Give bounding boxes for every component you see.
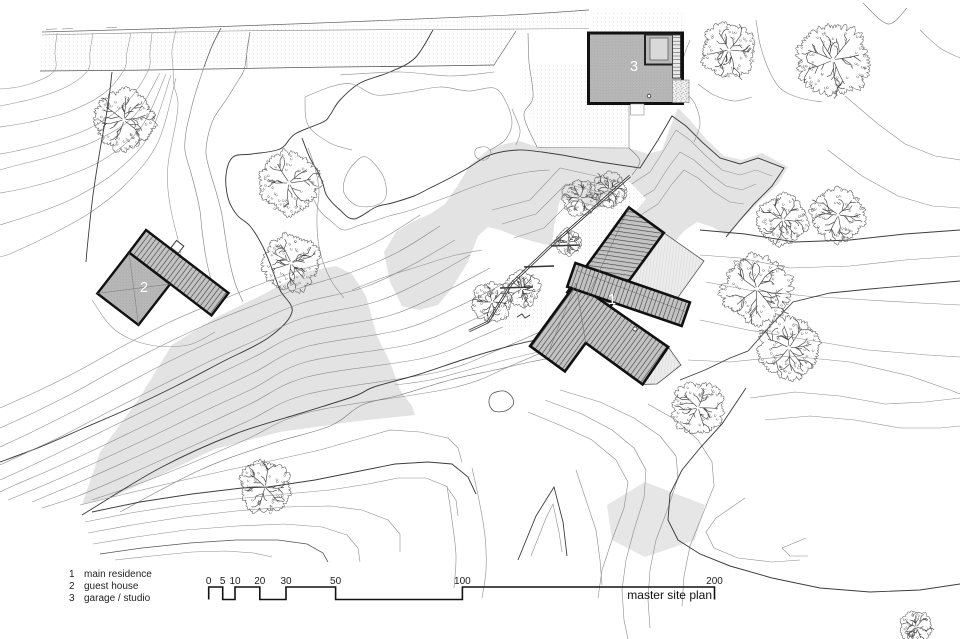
svg-text:0: 0 [206, 576, 212, 587]
svg-text:garage / studio: garage / studio [84, 593, 151, 604]
svg-text:200: 200 [706, 576, 723, 587]
svg-text:2: 2 [140, 280, 148, 296]
svg-text:3: 3 [630, 59, 638, 75]
svg-text:main residence: main residence [84, 569, 152, 580]
svg-text:100: 100 [454, 576, 471, 587]
svg-text:5: 5 [220, 576, 226, 587]
svg-text:guest house: guest house [84, 581, 139, 592]
svg-text:2: 2 [69, 581, 75, 592]
svg-text:50: 50 [330, 576, 342, 587]
svg-text:20: 20 [254, 576, 266, 587]
svg-text:10: 10 [229, 576, 241, 587]
svg-text:1: 1 [69, 569, 75, 580]
svg-text:30: 30 [280, 576, 292, 587]
svg-text:1: 1 [608, 292, 616, 308]
svg-text:master site plan: master site plan [627, 588, 712, 602]
svg-text:3: 3 [69, 593, 75, 604]
